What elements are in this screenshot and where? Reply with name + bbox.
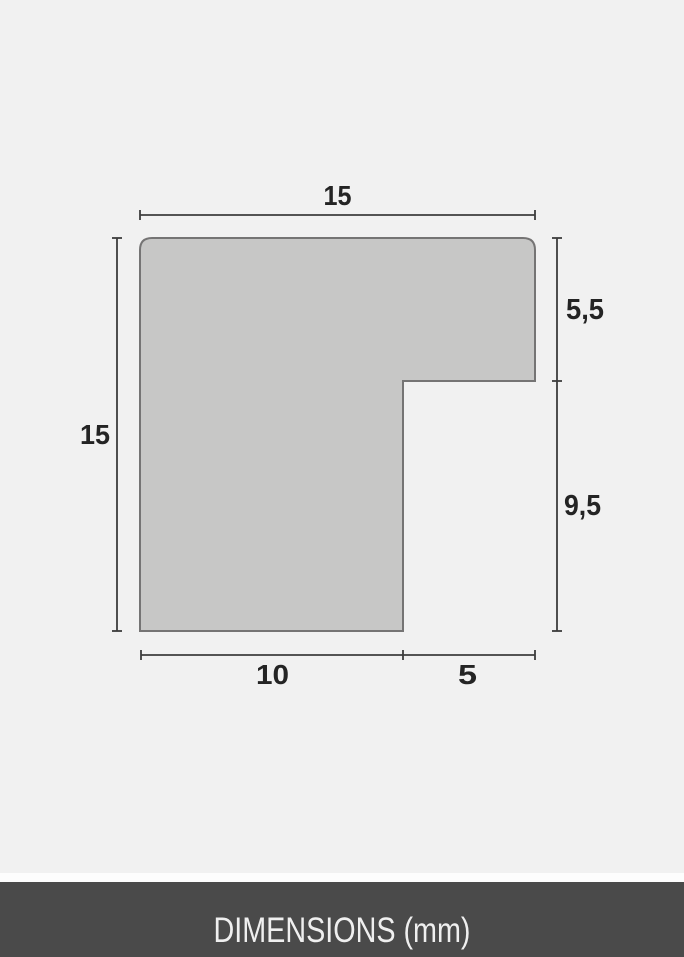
svg-text:5,5: 5,5 [566, 294, 604, 326]
svg-text:9,5: 9,5 [564, 490, 601, 522]
svg-text:15: 15 [324, 180, 352, 211]
svg-text:15: 15 [80, 419, 110, 450]
svg-text:DIMENSIONS (mm): DIMENSIONS (mm) [214, 911, 471, 950]
svg-text:5: 5 [458, 659, 477, 690]
svg-text:10: 10 [256, 659, 289, 690]
